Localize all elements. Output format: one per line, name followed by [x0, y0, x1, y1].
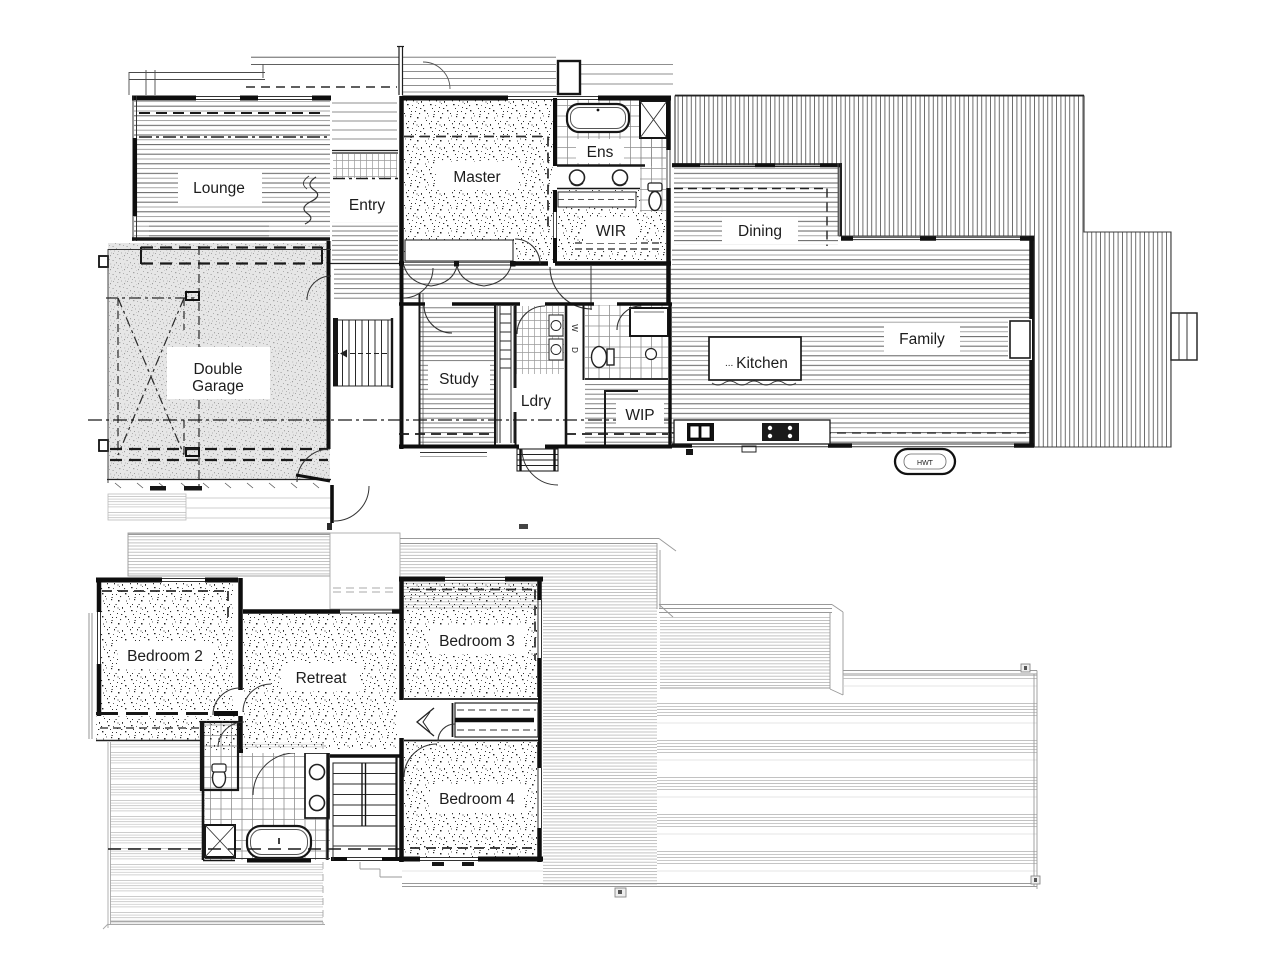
svg-text:Family: Family: [899, 331, 945, 348]
svg-text:HWT: HWT: [917, 460, 934, 467]
svg-text:Kitchen: Kitchen: [736, 355, 788, 372]
svg-text:Entry: Entry: [349, 197, 385, 214]
svg-text:WIR: WIR: [596, 223, 626, 240]
svg-text:W: W: [570, 324, 579, 332]
svg-text:Retreat: Retreat: [296, 670, 348, 687]
svg-text:Ldry: Ldry: [521, 393, 551, 410]
svg-text:Lounge: Lounge: [193, 180, 245, 197]
svg-text:Double: Double: [193, 361, 242, 378]
svg-text:Dining: Dining: [738, 223, 782, 240]
svg-text:D: D: [570, 347, 579, 353]
svg-text:Ens: Ens: [587, 144, 614, 161]
svg-text:Garage: Garage: [192, 378, 244, 395]
svg-text:Master: Master: [453, 169, 500, 186]
svg-text:Bedroom 2: Bedroom 2: [127, 648, 203, 665]
svg-text:...: ...: [725, 358, 733, 369]
svg-text:WIP: WIP: [625, 407, 654, 424]
svg-text:Study: Study: [439, 371, 479, 388]
svg-text:Bedroom 4: Bedroom 4: [439, 791, 515, 808]
svg-text:Bedroom 3: Bedroom 3: [439, 633, 515, 650]
